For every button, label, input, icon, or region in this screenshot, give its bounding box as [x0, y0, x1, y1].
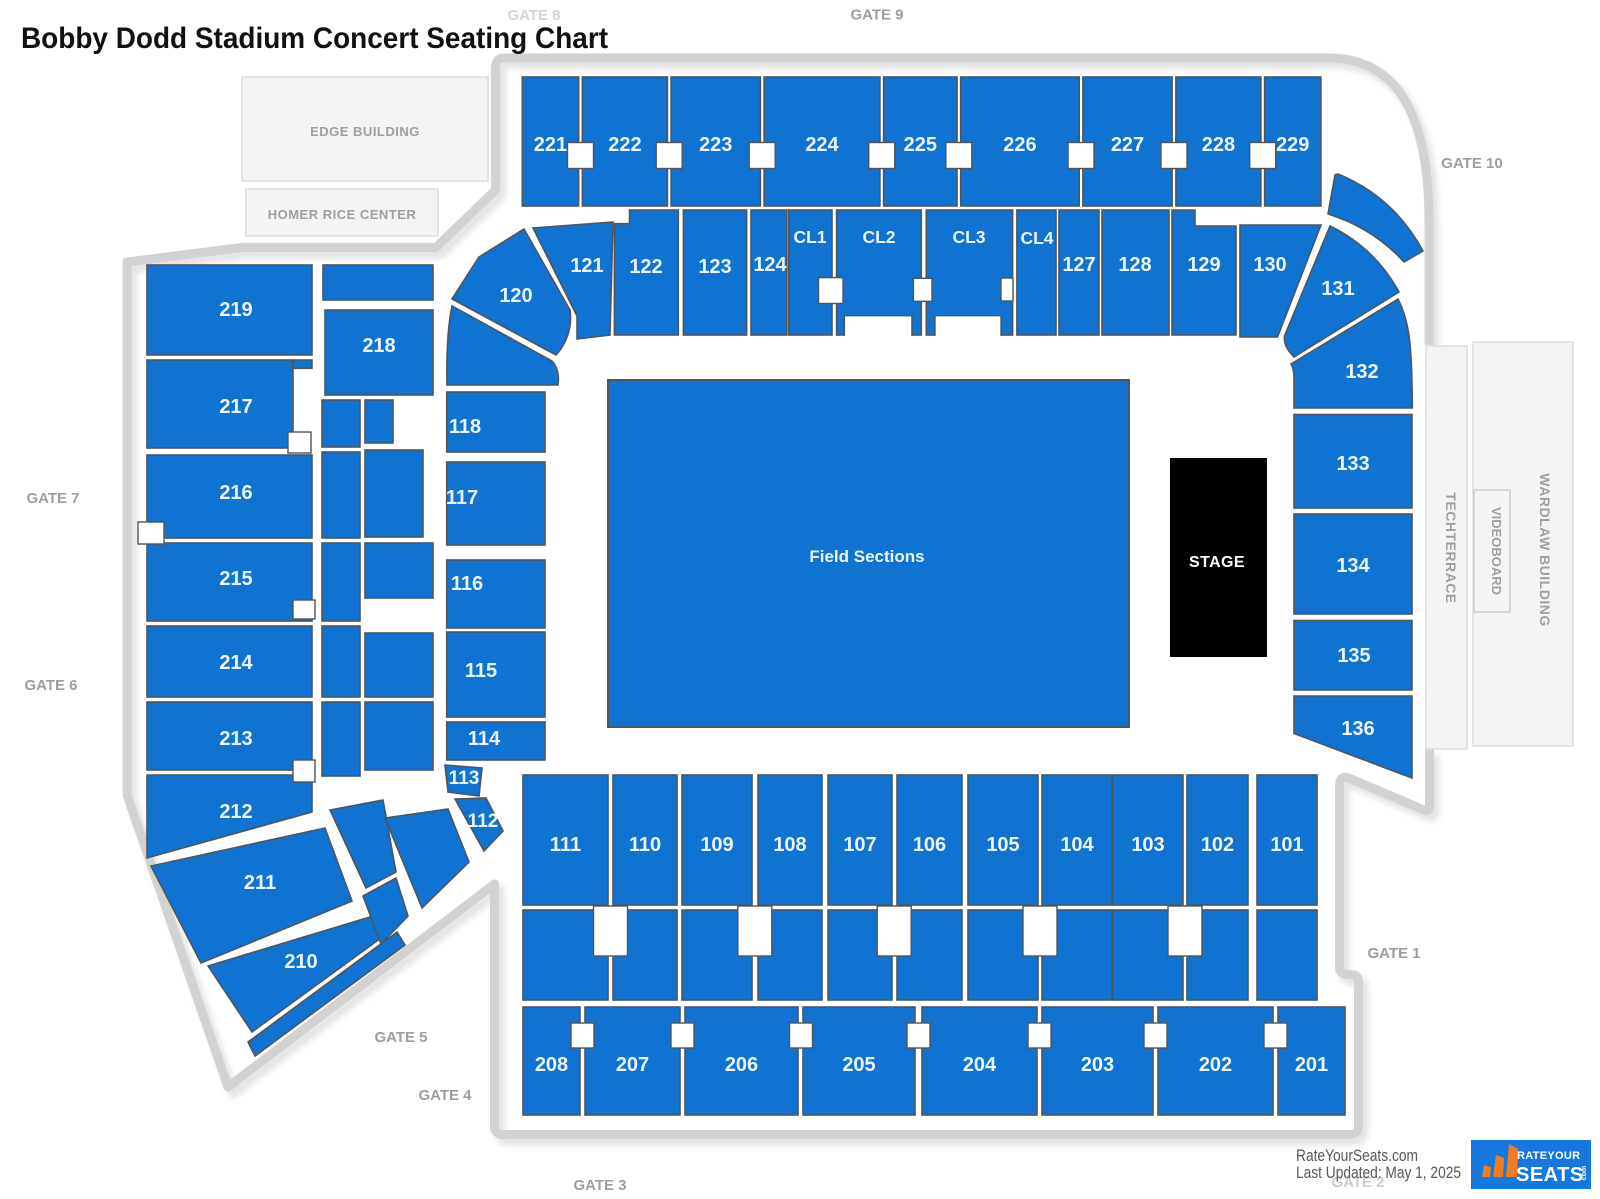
svg-text:135: 135 — [1337, 645, 1370, 667]
svg-text:133: 133 — [1336, 453, 1369, 475]
svg-text:207: 207 — [616, 1054, 649, 1076]
svg-text:202: 202 — [1199, 1054, 1232, 1076]
svg-text:114: 114 — [468, 728, 501, 750]
svg-text:RATEYOUR: RATEYOUR — [1517, 1150, 1580, 1162]
svg-text:Last Updated: May 1, 2025: Last Updated: May 1, 2025 — [1296, 1163, 1461, 1182]
svg-text:106: 106 — [913, 834, 946, 856]
svg-text:222: 222 — [608, 134, 641, 156]
svg-text:103: 103 — [1131, 834, 1164, 856]
svg-text:CL3: CL3 — [952, 227, 985, 247]
svg-text:GATE 10: GATE 10 — [1441, 155, 1502, 172]
svg-text:GATE 6: GATE 6 — [24, 677, 77, 694]
svg-text:113: 113 — [449, 768, 480, 789]
svg-text:GATE 1: GATE 1 — [1367, 945, 1420, 962]
svg-text:124: 124 — [753, 254, 787, 276]
svg-text:com: com — [1581, 1166, 1588, 1180]
svg-text:204: 204 — [963, 1054, 997, 1076]
svg-text:206: 206 — [725, 1054, 758, 1076]
svg-text:EDGE BUILDING: EDGE BUILDING — [310, 124, 420, 139]
svg-text:221: 221 — [534, 134, 567, 156]
svg-text:136: 136 — [1341, 718, 1374, 740]
svg-text:228: 228 — [1202, 134, 1235, 156]
svg-text:223: 223 — [699, 134, 732, 156]
svg-text:HOMER RICE CENTER: HOMER RICE CENTER — [268, 207, 417, 222]
svg-text:214: 214 — [219, 652, 253, 674]
svg-text:212: 212 — [219, 801, 252, 823]
svg-text:CL1: CL1 — [793, 227, 826, 247]
svg-text:203: 203 — [1081, 1054, 1114, 1076]
svg-text:128: 128 — [1118, 254, 1151, 276]
svg-text:111: 111 — [550, 834, 581, 856]
svg-text:STAGE: STAGE — [1189, 554, 1245, 571]
svg-text:210: 210 — [284, 951, 317, 973]
svg-text:215: 215 — [219, 568, 252, 590]
svg-text:GATE 5: GATE 5 — [374, 1029, 427, 1046]
svg-text:205: 205 — [842, 1054, 875, 1076]
svg-text:120: 120 — [499, 285, 532, 307]
svg-text:224: 224 — [805, 134, 839, 156]
svg-text:122: 122 — [629, 256, 662, 278]
svg-text:107: 107 — [843, 834, 876, 856]
svg-text:127: 127 — [1062, 254, 1095, 276]
svg-text:SEATS: SEATS — [1516, 1164, 1584, 1186]
svg-text:201: 201 — [1295, 1054, 1328, 1076]
svg-text:121: 121 — [570, 255, 603, 277]
svg-text:213: 213 — [219, 728, 252, 750]
svg-text:116: 116 — [451, 573, 483, 595]
svg-text:104: 104 — [1060, 834, 1094, 856]
svg-text:GATE 7: GATE 7 — [26, 490, 79, 507]
svg-text:131: 131 — [1321, 278, 1354, 300]
svg-text:123: 123 — [698, 256, 731, 278]
svg-text:WARDLAW BUILDING: WARDLAW BUILDING — [1537, 473, 1553, 626]
svg-text:102: 102 — [1201, 834, 1234, 856]
svg-text:109: 109 — [700, 834, 733, 856]
svg-text:GATE 9: GATE 9 — [850, 7, 903, 24]
svg-text:117: 117 — [446, 487, 478, 509]
svg-text:225: 225 — [904, 134, 937, 156]
svg-text:GATE 3: GATE 3 — [573, 1177, 626, 1194]
svg-text:229: 229 — [1276, 134, 1309, 156]
svg-text:105: 105 — [986, 834, 1019, 856]
svg-text:218: 218 — [362, 335, 395, 357]
svg-text:101: 101 — [1270, 834, 1303, 856]
svg-text:CL2: CL2 — [862, 227, 895, 247]
svg-text:134: 134 — [1336, 555, 1370, 577]
svg-text:VIDEOBOARD: VIDEOBOARD — [1489, 507, 1504, 595]
svg-text:216: 216 — [219, 482, 252, 504]
svg-text:CL4: CL4 — [1020, 228, 1053, 248]
svg-text:227: 227 — [1111, 134, 1144, 156]
svg-text:115: 115 — [465, 660, 497, 682]
svg-text:217: 217 — [219, 396, 252, 418]
svg-text:129: 129 — [1187, 254, 1220, 276]
svg-text:226: 226 — [1003, 134, 1036, 156]
svg-text:211: 211 — [244, 872, 276, 894]
svg-text:Bobby Dodd Stadium Concert Sea: Bobby Dodd Stadium Concert Seating Chart — [21, 22, 608, 55]
svg-text:130: 130 — [1253, 254, 1286, 276]
svg-text:Field Sections: Field Sections — [809, 547, 924, 566]
svg-text:208: 208 — [535, 1054, 568, 1076]
svg-text:132: 132 — [1345, 361, 1378, 383]
svg-text:112: 112 — [468, 811, 499, 832]
svg-text:108: 108 — [773, 834, 806, 856]
svg-text:118: 118 — [449, 416, 481, 438]
svg-text:TECHTERRACE: TECHTERRACE — [1443, 492, 1459, 603]
svg-text:GATE 4: GATE 4 — [418, 1087, 472, 1104]
svg-text:219: 219 — [219, 299, 252, 321]
svg-text:110: 110 — [629, 834, 661, 856]
